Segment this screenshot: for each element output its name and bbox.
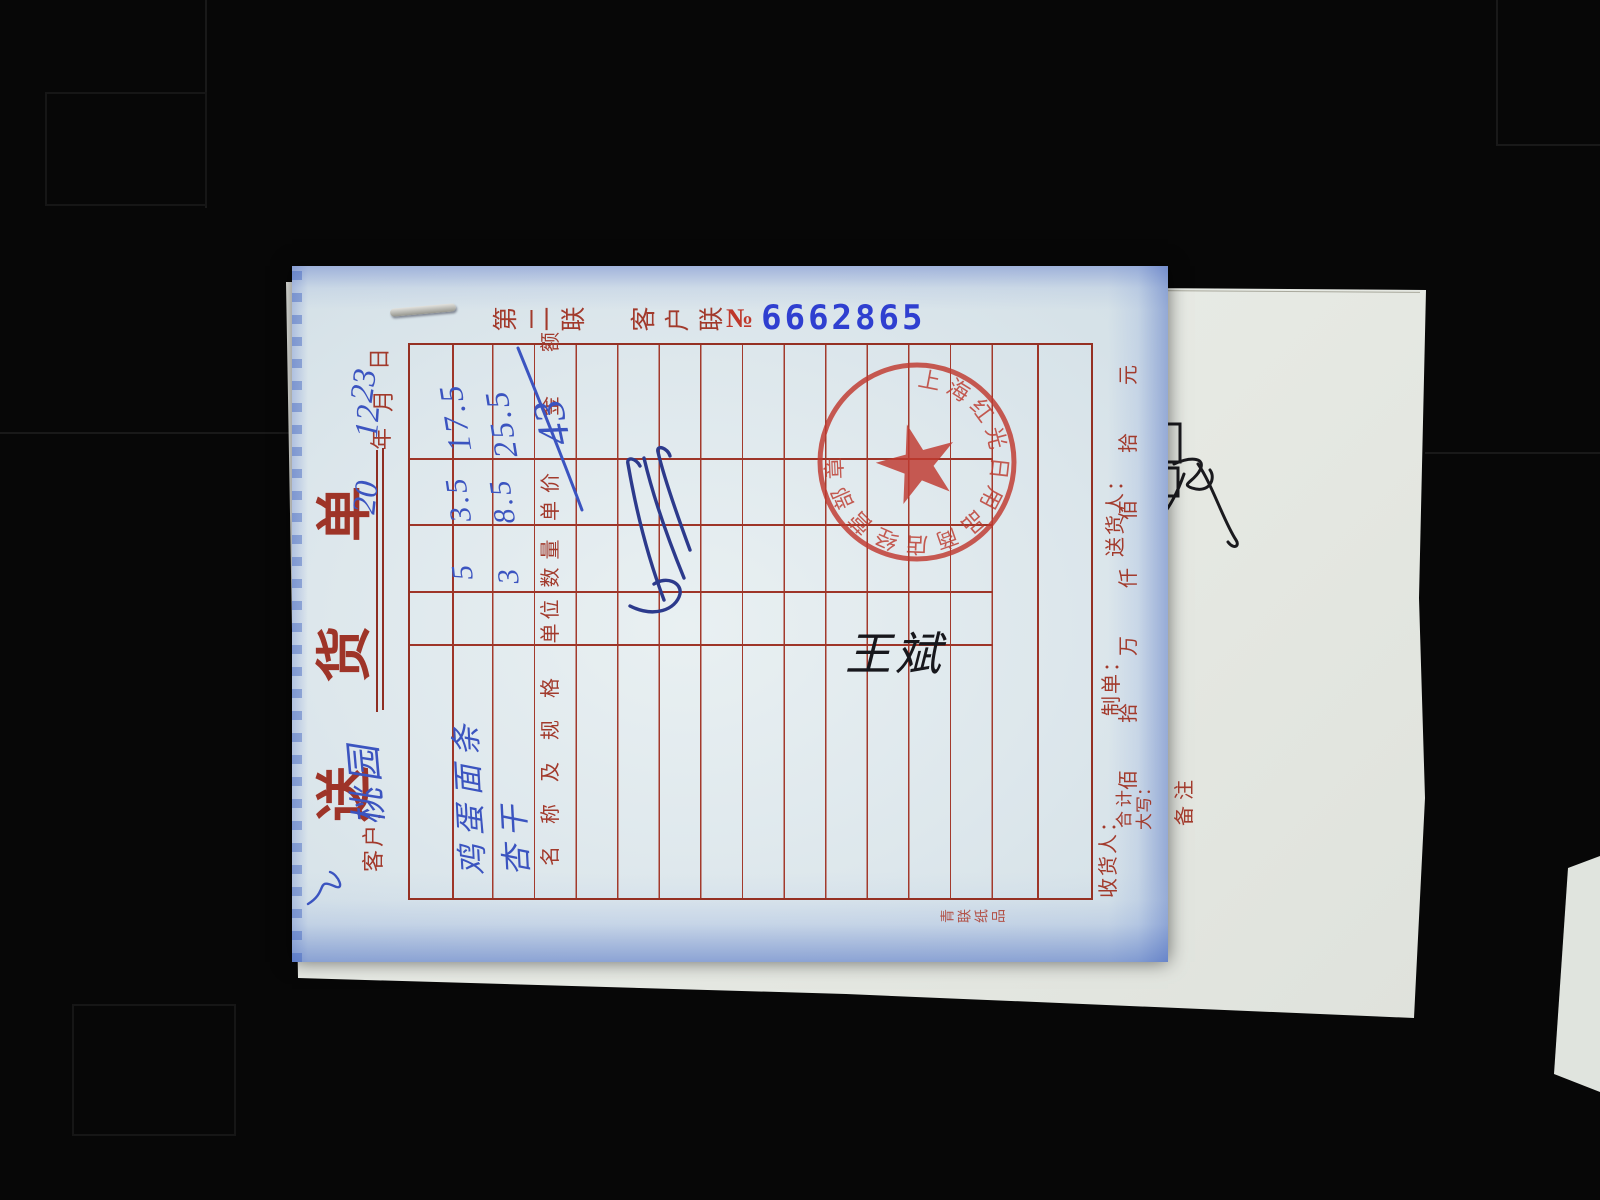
background-seam xyxy=(1425,452,1600,454)
delivery-note-sheet: 送货单 客户： 桃园 20 年 12 月 23 日 第二联 客户联 № 6662… xyxy=(292,266,1168,962)
background-panel xyxy=(45,92,207,206)
remark-label: 备注 xyxy=(1168,774,1197,826)
pen-strike xyxy=(292,266,1168,962)
signature-box: 王斌 xyxy=(841,594,955,694)
background-seam xyxy=(0,432,290,434)
background-seam xyxy=(1496,0,1498,146)
pen-flourish xyxy=(628,448,690,612)
background-panel xyxy=(72,1004,236,1136)
photo-canvas: 制单人： 王振弟 审核人： 主管签名： 总金额： 43 送货单 客户： 桃园 2… xyxy=(0,0,1600,1200)
paper-sliver xyxy=(1550,856,1600,1096)
paper-crease xyxy=(1158,290,1420,293)
background-seam xyxy=(1496,144,1600,146)
stamp-star-icon xyxy=(868,414,965,508)
company-stamp: 上海红光日用品商店经营部章 xyxy=(812,357,1022,567)
handwritten-signature: 王斌 xyxy=(845,618,959,670)
